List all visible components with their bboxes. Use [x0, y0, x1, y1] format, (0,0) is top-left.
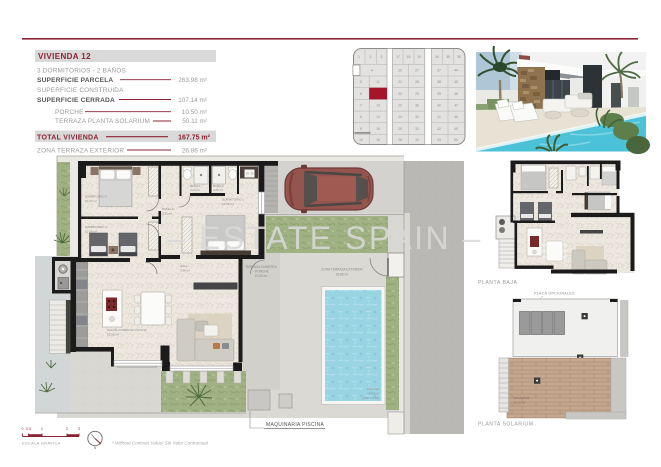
svg-text:VIVIENDA 12: VIVIENDA 12 — [38, 52, 91, 61]
svg-text:31: 31 — [415, 115, 419, 119]
svg-text:24: 24 — [398, 115, 402, 119]
svg-text:26.86 m²: 26.86 m² — [336, 273, 349, 277]
svg-text:46: 46 — [454, 92, 458, 96]
svg-text:DORMITORIO 2: DORMITORIO 2 — [85, 195, 107, 199]
svg-text:2: 2 — [66, 427, 68, 431]
svg-text:DORMITORIO 1: DORMITORIO 1 — [222, 198, 244, 202]
svg-text:45: 45 — [454, 80, 458, 84]
svg-text:33: 33 — [415, 138, 419, 142]
svg-text:3.21 m²: 3.21 m² — [162, 212, 172, 216]
svg-text:13.06 m²: 13.06 m² — [222, 202, 234, 206]
svg-text:26: 26 — [398, 138, 402, 142]
svg-text:263.98 m²: 263.98 m² — [178, 77, 207, 84]
svg-text:27: 27 — [415, 69, 419, 73]
svg-text:4.23 m²: 4.23 m² — [190, 188, 200, 192]
svg-text:3: 3 — [78, 427, 80, 431]
svg-text:7: 7 — [360, 104, 362, 108]
svg-text:50.11 m²: 50.11 m² — [182, 118, 207, 125]
svg-text:19: 19 — [417, 55, 421, 59]
svg-text:(6.00 x 3.00): (6.00 x 3.00) — [362, 396, 379, 400]
svg-text:20: 20 — [398, 69, 402, 73]
svg-text:34: 34 — [435, 55, 439, 59]
svg-text:SOLARIUM: SOLARIUM — [514, 396, 530, 400]
svg-text:TERRAZA CUBIERTA: TERRAZA CUBIERTA — [245, 265, 277, 269]
svg-text:107.14 m²: 107.14 m² — [178, 97, 207, 104]
svg-text:PORCHE: PORCHE — [55, 109, 84, 116]
svg-text:HALL: HALL — [180, 264, 188, 268]
svg-text:50: 50 — [454, 138, 458, 142]
svg-text:42: 42 — [437, 127, 441, 131]
svg-text:SUPERFICIE CERRADA: SUPERFICIE CERRADA — [37, 97, 115, 104]
svg-text:50.11 m²: 50.11 m² — [514, 401, 526, 405]
svg-text:23: 23 — [398, 104, 402, 108]
svg-text:TOTAL VIVIENDA: TOTAL VIVIENDA — [37, 134, 99, 141]
svg-text:2: 2 — [370, 55, 372, 59]
svg-text:PLANTA SOLARIUM: PLANTA SOLARIUM — [478, 422, 534, 428]
svg-text:15: 15 — [376, 127, 380, 131]
svg-text:32: 32 — [415, 127, 419, 131]
svg-text:8: 8 — [360, 115, 362, 119]
svg-text:47: 47 — [454, 104, 458, 108]
svg-text:1: 1 — [41, 427, 43, 431]
svg-text:0.5: 0.5 — [26, 427, 31, 431]
svg-text:– ESTATE SPAIN –: – ESTATE SPAIN – — [167, 220, 483, 256]
svg-text:21.29 m²: 21.29 m² — [107, 333, 119, 337]
svg-text:TERRAZA PLANTA SOLARIUM: TERRAZA PLANTA SOLARIUM — [55, 118, 150, 125]
svg-text:4.23 m²: 4.23 m² — [213, 188, 223, 192]
svg-text:* Without Contract Value/ Sin: * Without Contract Value/ Sin Valor Cont… — [112, 441, 209, 446]
svg-text:6: 6 — [360, 92, 362, 96]
svg-text:10: 10 — [359, 138, 363, 142]
svg-text:SUPERFICIE PARCELA: SUPERFICIE PARCELA — [37, 77, 113, 84]
svg-text:37: 37 — [437, 69, 441, 73]
svg-text:ZONA TERRAZA EXTERIOR: ZONA TERRAZA EXTERIOR — [321, 268, 363, 272]
svg-text:30: 30 — [415, 104, 419, 108]
svg-text:43: 43 — [437, 138, 441, 142]
svg-text:167.75 m²: 167.75 m² — [178, 134, 211, 141]
svg-text:- PORCHE: - PORCHE — [253, 270, 269, 274]
svg-text:17: 17 — [396, 55, 400, 59]
svg-text:36: 36 — [457, 55, 461, 59]
svg-text:18.00 m²: 18.00 m² — [367, 392, 379, 396]
svg-text:0: 0 — [22, 427, 24, 431]
svg-text:SALÓN-COMEDOR-COCINA: SALÓN-COMEDOR-COCINA — [107, 327, 147, 332]
svg-text:41: 41 — [437, 115, 441, 119]
svg-text:22: 22 — [398, 92, 402, 96]
svg-text:9: 9 — [360, 127, 362, 131]
svg-text:25: 25 — [398, 127, 402, 131]
svg-text:29: 29 — [415, 92, 419, 96]
svg-text:1: 1 — [358, 55, 360, 59]
svg-text:48: 48 — [454, 115, 458, 119]
svg-text:DORMITORIO 3: DORMITORIO 3 — [85, 225, 107, 229]
svg-text:13: 13 — [376, 104, 380, 108]
svg-text:39: 39 — [437, 92, 441, 96]
svg-text:3 DORMITORIOS - 2 BAÑOS: 3 DORMITORIOS - 2 BAÑOS — [37, 66, 126, 75]
svg-text:16: 16 — [376, 138, 380, 142]
svg-text:14: 14 — [376, 115, 380, 119]
svg-text:4: 4 — [371, 69, 373, 73]
svg-text:26.86 m²: 26.86 m² — [182, 147, 207, 154]
svg-text:10.26 m²: 10.26 m² — [85, 199, 97, 203]
svg-text:3.08 m²: 3.08 m² — [180, 269, 190, 273]
svg-text:3: 3 — [381, 55, 383, 59]
svg-text:35: 35 — [446, 55, 450, 59]
svg-text:PLANTA BAJA: PLANTA BAJA — [478, 280, 517, 286]
svg-text:PASILLO: PASILLO — [162, 207, 175, 211]
svg-text:5: 5 — [360, 80, 362, 84]
svg-text:MAQUINARIA PISCINA: MAQUINARIA PISCINA — [266, 422, 325, 428]
svg-text:49: 49 — [454, 127, 458, 131]
svg-text:28: 28 — [415, 80, 419, 84]
svg-text:18: 18 — [407, 55, 411, 59]
svg-text:38: 38 — [437, 80, 441, 84]
svg-text:10.50 m²: 10.50 m² — [182, 109, 207, 116]
svg-text:40: 40 — [437, 104, 441, 108]
svg-text:11: 11 — [376, 80, 380, 84]
svg-text:PLACA OPCIONALES: PLACA OPCIONALES — [534, 292, 575, 296]
svg-text:SUPERFICIE CONSTRUIDA: SUPERFICIE CONSTRUIDA — [37, 87, 124, 94]
svg-text:ZONA TERRAZA EXTERIOR: ZONA TERRAZA EXTERIOR — [37, 147, 124, 154]
svg-text:10.50 m²: 10.50 m² — [255, 274, 268, 278]
svg-text:21: 21 — [398, 80, 402, 84]
svg-text:PISCINA: PISCINA — [367, 387, 379, 391]
svg-text:ESCALA GRÁFICA: ESCALA GRÁFICA — [22, 441, 61, 446]
svg-text:44: 44 — [454, 69, 458, 73]
